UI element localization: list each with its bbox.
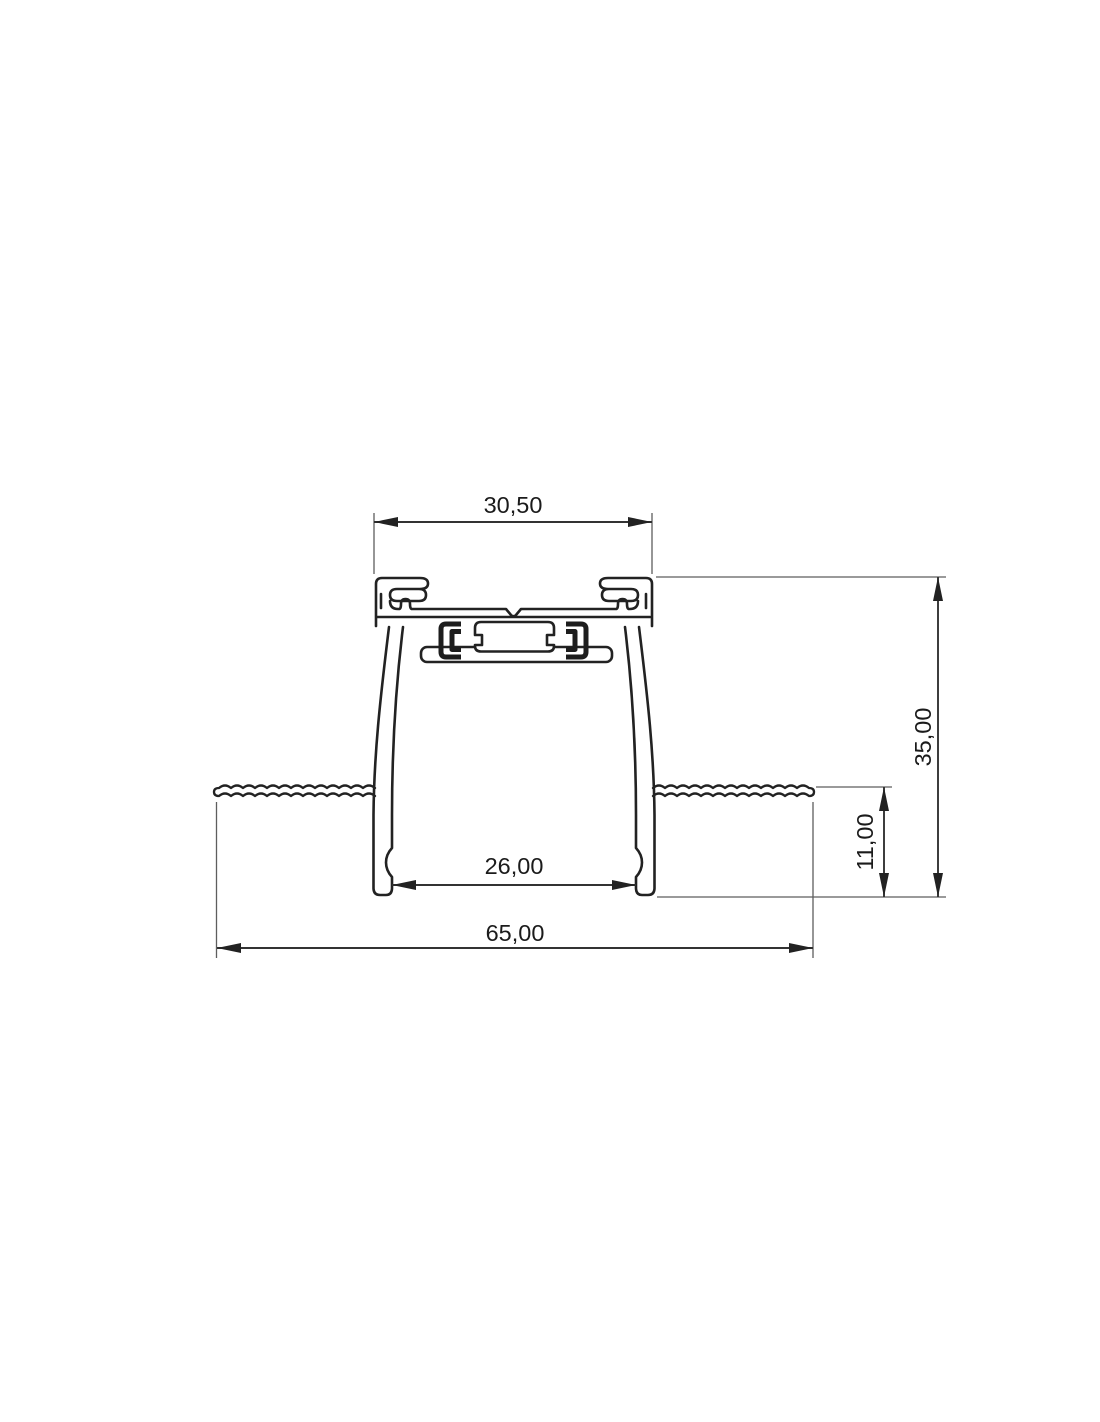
arrowhead-top bbox=[879, 787, 889, 811]
dim-label-inner-opening-width: 26,00 bbox=[485, 853, 544, 879]
arrowhead-left bbox=[392, 880, 416, 890]
dimension-overall-height: 35,00 bbox=[656, 577, 946, 897]
arrowhead-right bbox=[789, 943, 813, 953]
dim-label-overall-width: 65,00 bbox=[486, 920, 545, 946]
arrowhead-right bbox=[628, 517, 652, 527]
dimension-overall-width: 65,00 bbox=[217, 802, 814, 958]
technical-drawing-page: 30,50 35,00 11,00 26,00 bbox=[0, 0, 1100, 1422]
arrowhead-bottom bbox=[879, 873, 889, 897]
arrowhead-left bbox=[374, 517, 398, 527]
plasterboard-break-lines bbox=[214, 786, 814, 797]
dimension-top-width: 30,50 bbox=[374, 492, 652, 574]
profile-cross-section-drawing: 30,50 35,00 11,00 26,00 bbox=[0, 0, 1100, 1422]
profile-left-leg bbox=[374, 627, 404, 895]
arrowhead-left bbox=[217, 943, 241, 953]
dim-label-top-width: 30,50 bbox=[484, 492, 543, 518]
dimension-inner-opening-width: 26,00 bbox=[392, 853, 636, 890]
arrowhead-bottom bbox=[933, 873, 943, 897]
profile-outline bbox=[374, 578, 655, 895]
plasterboard-right bbox=[653, 786, 814, 797]
profile-right-leg bbox=[625, 627, 655, 895]
dimension-recess-depth: 11,00 bbox=[816, 787, 892, 897]
profile-inner-ledge bbox=[390, 599, 638, 616]
led-strip-channel-box bbox=[475, 622, 554, 652]
arrowhead-top bbox=[933, 577, 943, 601]
arrowhead-right bbox=[612, 880, 636, 890]
extension-line bbox=[656, 577, 946, 897]
plasterboard-left bbox=[214, 786, 375, 797]
dim-label-overall-height: 35,00 bbox=[910, 708, 936, 767]
dim-label-recess-depth: 11,00 bbox=[852, 813, 878, 870]
